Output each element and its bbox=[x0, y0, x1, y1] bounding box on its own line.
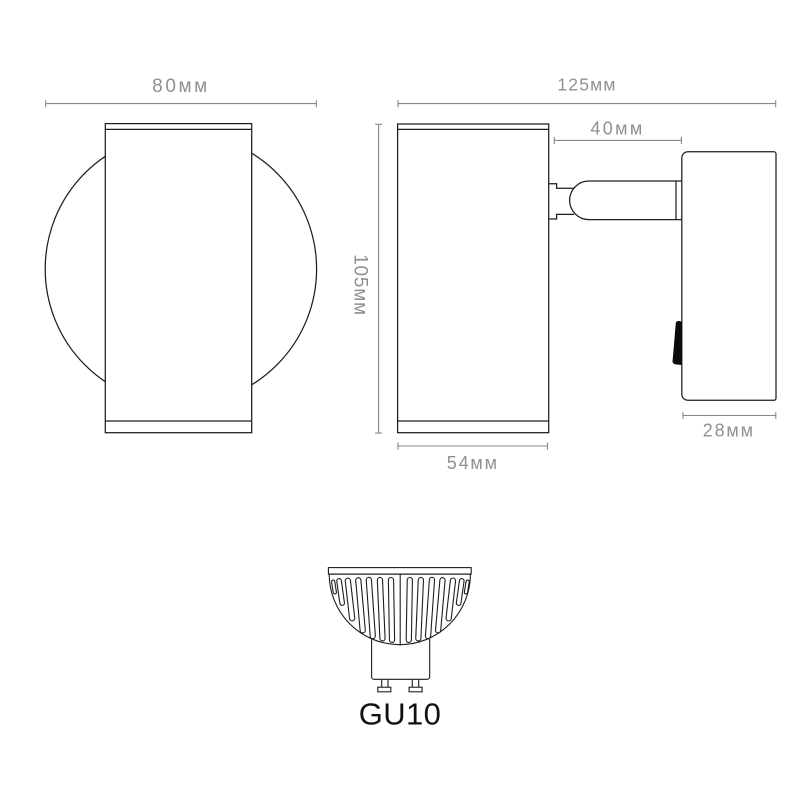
svg-text:125мм: 125мм bbox=[557, 75, 616, 95]
svg-text:80мм: 80мм bbox=[152, 76, 210, 97]
svg-text:105мм: 105мм bbox=[350, 254, 371, 316]
svg-text:54мм: 54мм bbox=[447, 453, 499, 473]
svg-text:GU10: GU10 bbox=[359, 697, 442, 732]
svg-text:40мм: 40мм bbox=[590, 118, 644, 138]
svg-text:28мм: 28мм bbox=[703, 421, 755, 441]
